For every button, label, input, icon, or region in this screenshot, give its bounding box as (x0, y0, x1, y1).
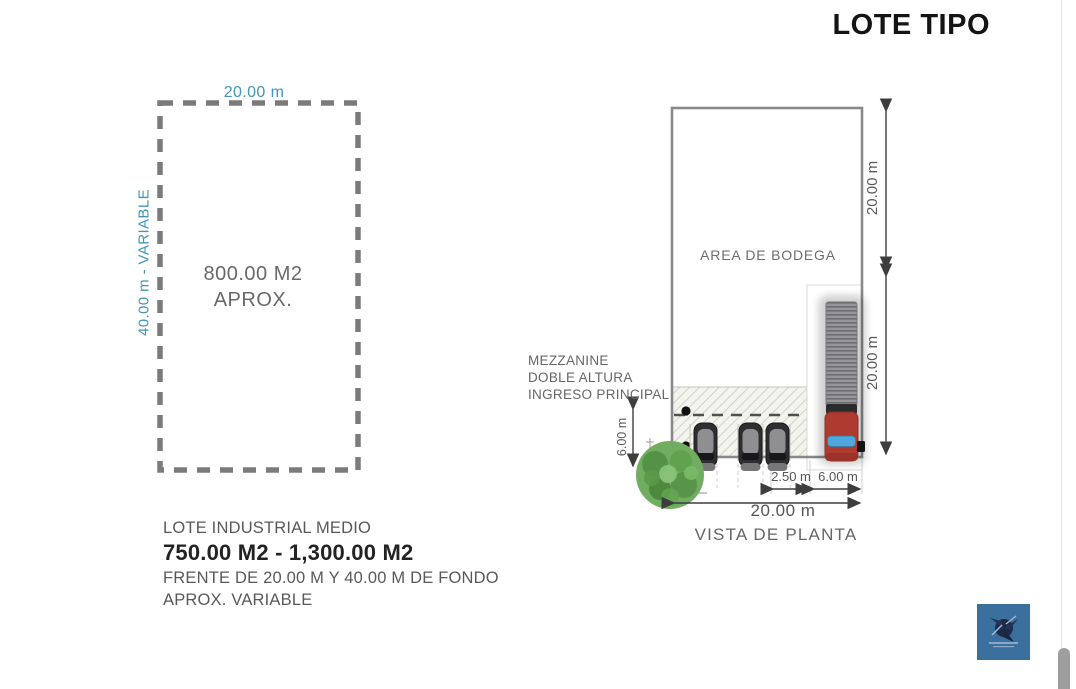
annotation-main-entrance: INGRESO PRINCIPAL (528, 386, 698, 403)
truck-top-view (818, 295, 866, 465)
car-top-view (739, 423, 762, 471)
depth-dimension-top: 20.00 m (864, 143, 880, 233)
depth-dimension-bottom: 20.00 m (864, 318, 880, 408)
annotation-double-height: DOBLE ALTURA (528, 369, 698, 386)
page-edge-divider (1061, 0, 1062, 689)
lot-area-value: 800.00 M2 (153, 261, 353, 287)
dock-width-dimension: 6.00 m (803, 469, 873, 484)
vertical-scrollbar-thumb[interactable] (1058, 648, 1070, 689)
plan-view-caption: VISTA DE PLANTA (676, 525, 876, 545)
warehouse-area-label: AREA DE BODEGA (690, 247, 846, 263)
lot-type-label: LOTE INDUSTRIAL MEDIO (163, 517, 563, 539)
truck-mirror (857, 441, 865, 452)
tree-top-view (636, 441, 704, 509)
lot-size-range: 750.00 M2 - 1,300.00 M2 (163, 539, 563, 567)
lot-area-approx: APROX. (153, 287, 353, 313)
lot-depth-dimension: 40.00 m - VARIABLE (136, 178, 153, 348)
brand-logo-icon (977, 604, 1030, 660)
lot-approx-note: APROX. VARIABLE (163, 589, 563, 611)
floor-plan-drawing (600, 90, 900, 560)
lot-description: LOTE INDUSTRIAL MEDIO 750.00 M2 - 1,300.… (163, 517, 563, 611)
lot-width-dimension: 20.00 m (154, 84, 354, 102)
plan-annotations: MEZZANINE DOBLE ALTURA INGRESO PRINCIPAL (528, 352, 698, 404)
annotation-mezzanine: MEZZANINE (528, 352, 698, 369)
document-page: LOTE TIPO 20.00 m 40.00 m - VARIABLE 800… (0, 0, 1076, 689)
car-top-view (766, 423, 789, 471)
parked-cars (694, 423, 789, 471)
front-width-dimension: 20.00 m (723, 501, 843, 521)
lot-front-depth: FRENTE DE 20.00 M Y 40.00 M DE FONDO (163, 567, 563, 589)
entry-depth-dimension: 6.00 m (615, 402, 629, 472)
page-title: LOTE TIPO (700, 9, 990, 42)
lot-area-text: 800.00 M2 APROX. (153, 261, 353, 313)
